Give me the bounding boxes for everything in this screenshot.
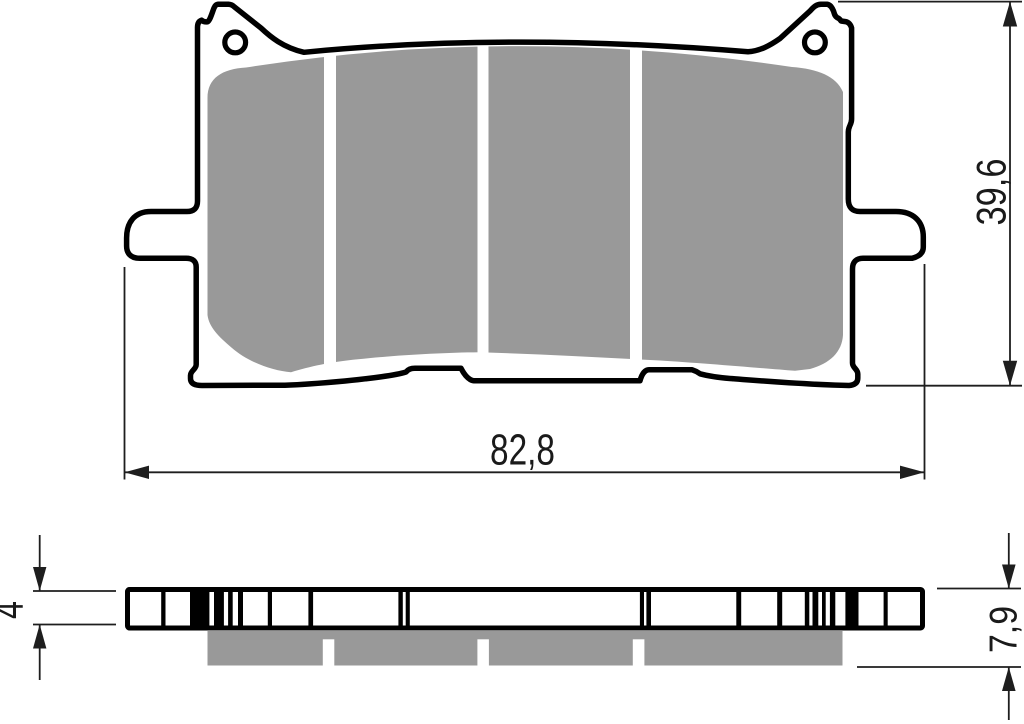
svg-text:7,9: 7,9 [983, 606, 1024, 653]
svg-text:82,8: 82,8 [490, 425, 555, 474]
svg-text:39,6: 39,6 [968, 159, 1015, 226]
svg-text:4: 4 [0, 601, 33, 619]
